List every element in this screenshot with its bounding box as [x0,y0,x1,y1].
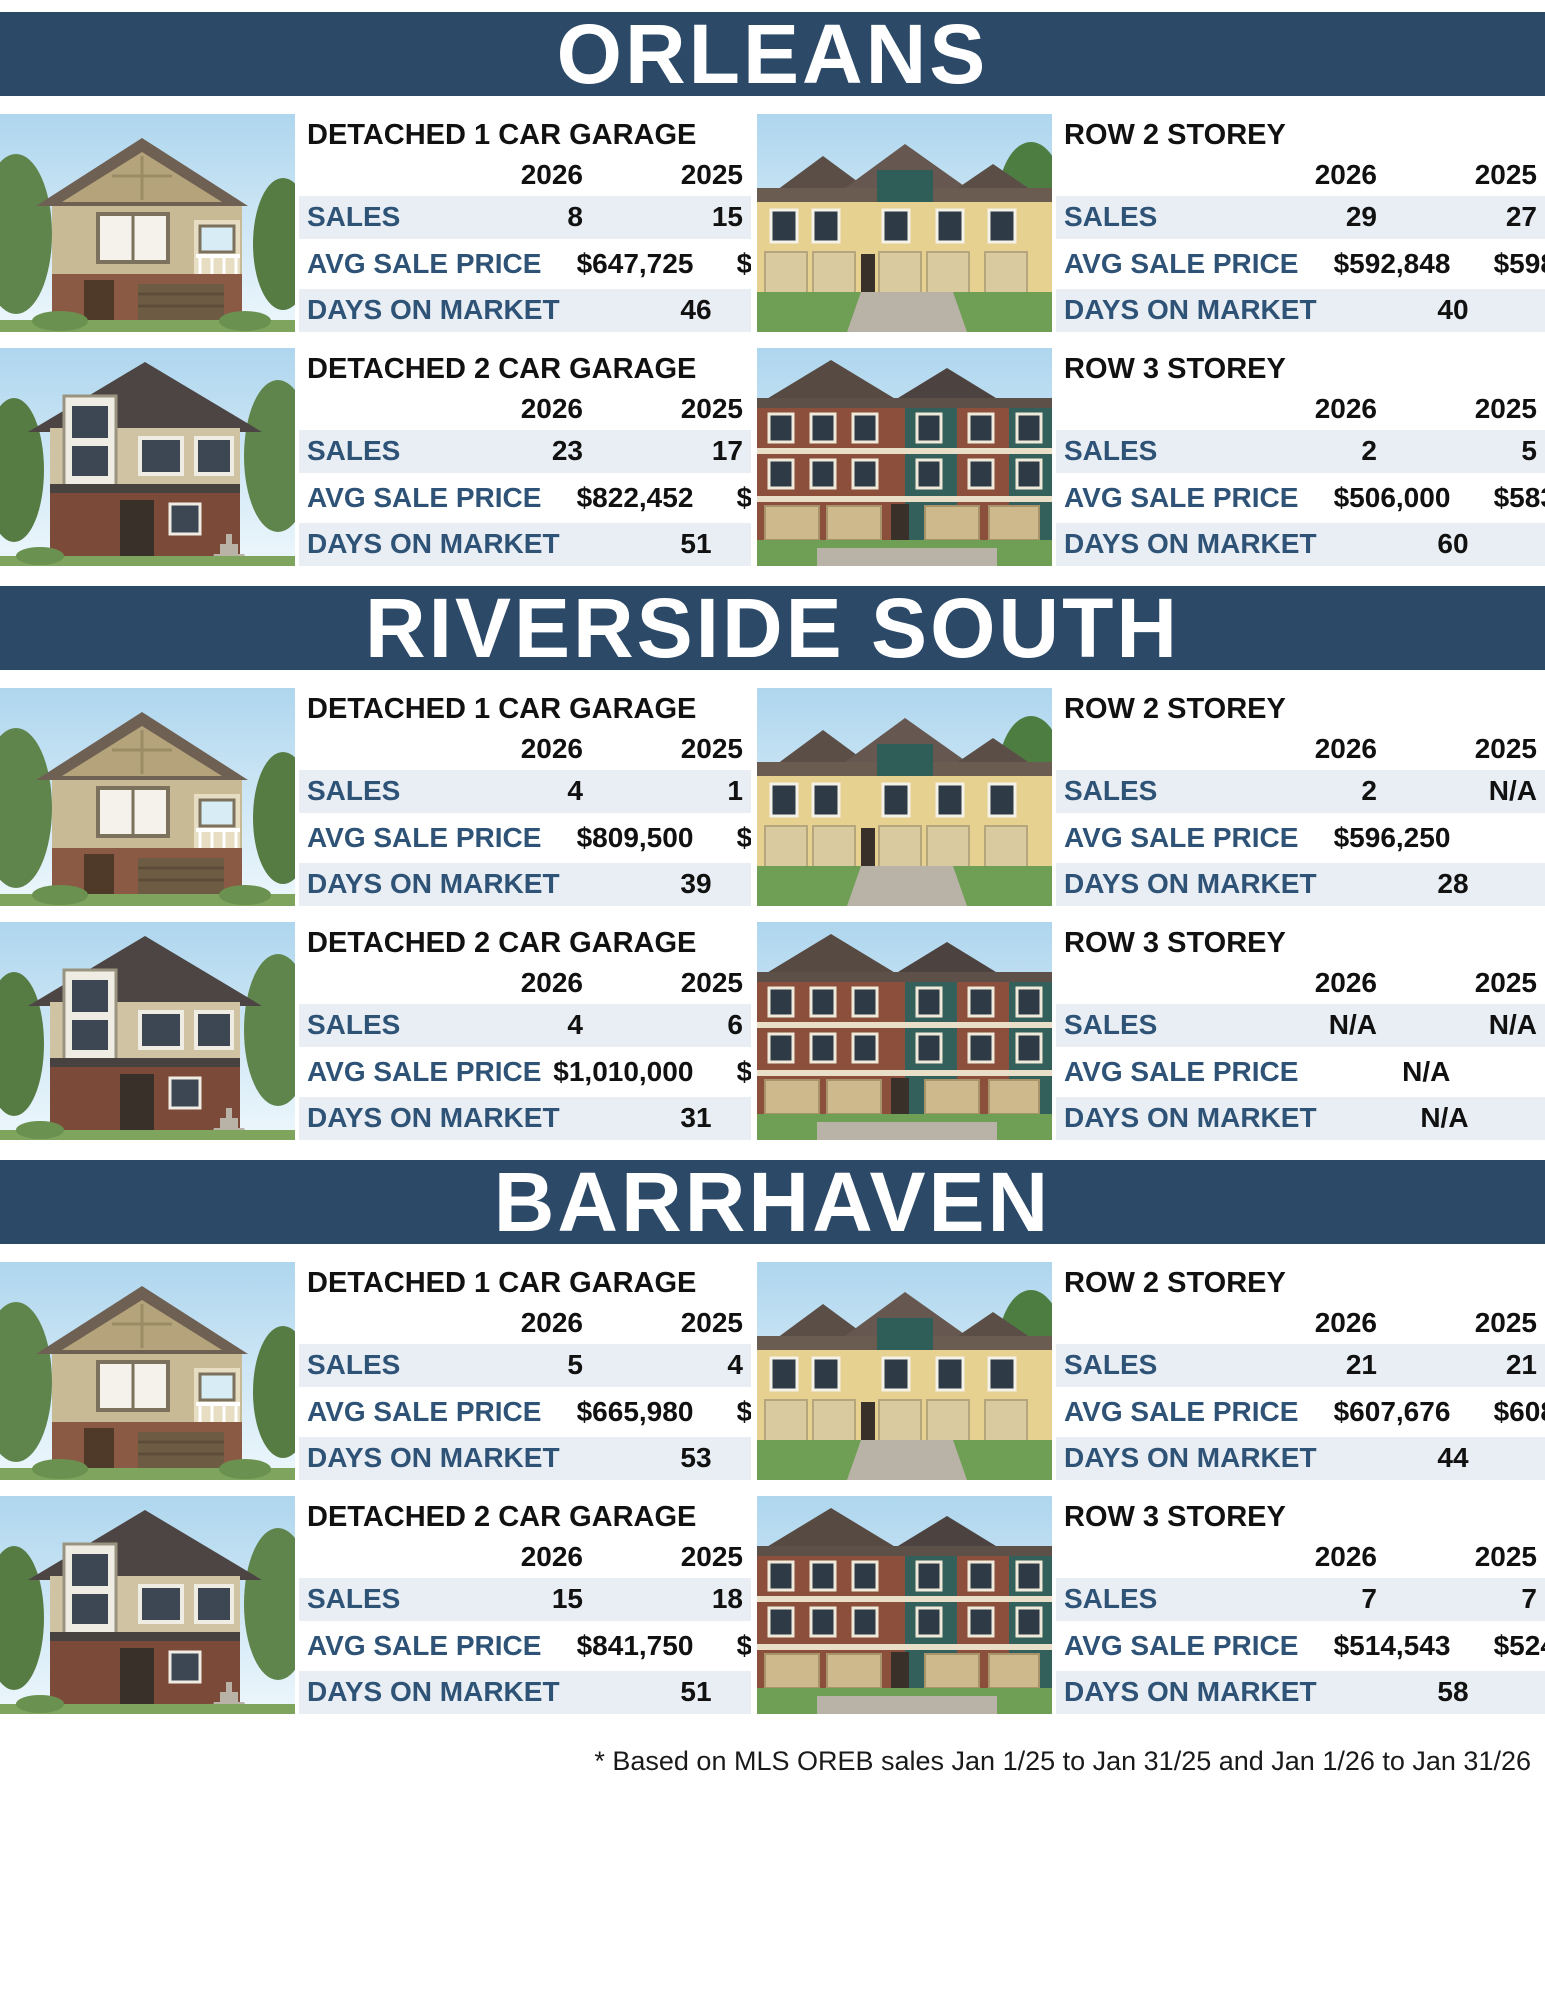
year-column-2026: 2026 [1225,1307,1385,1339]
stats-table: DETACHED 2 CAR GARAGE 2026 2025 SALES 4 … [299,922,751,1140]
year-column-2025: 2025 [591,393,751,425]
section-title: RIVERSIDE SOUTH [365,586,1180,670]
stats-table: DETACHED 1 CAR GARAGE 2026 2025 SALES 4 … [299,688,751,906]
table-title: DETACHED 2 CAR GARAGE [299,350,751,388]
house-image-row-3-storey [757,1496,1052,1714]
table-row-avg-sale-price: AVG SALE PRICE $506,000 $583,692 [1056,476,1545,519]
panel-barrhaven-detached-1-car: DETACHED 1 CAR GARAGE 2026 2025 SALES 5 … [0,1262,751,1480]
house-image-row-2-storey [757,1262,1052,1480]
section-grid: DETACHED 1 CAR GARAGE 2026 2025 SALES 5 … [0,1262,1545,1714]
table-title: ROW 3 STOREY [1056,1498,1545,1536]
house-image-row-3-storey [757,348,1052,566]
year-column-2026: 2026 [431,393,591,425]
table-year-header: 2026 2025 [1056,1539,1545,1575]
table-row-days-on-market: DAYS ON MARKET N/A N/A [1056,1097,1545,1140]
year-column-2025: 2025 [1385,1307,1545,1339]
table-title: ROW 3 STOREY [1056,924,1545,962]
house-image-row-2-storey [757,688,1052,906]
table-title: ROW 3 STOREY [1056,350,1545,388]
section-banner-barrhaven: BARRHAVEN [0,1160,1545,1244]
house-image-row-2-storey [757,114,1052,332]
table-row-sales: SALES 4 1 [299,770,751,813]
house-image-detached-2-car-garage [0,348,295,566]
table-title: DETACHED 2 CAR GARAGE [299,924,751,962]
stats-table: ROW 3 STOREY 2026 2025 SALES N/A N/A AVG… [1056,922,1545,1140]
table-year-header: 2026 2025 [299,1305,751,1341]
stats-table: ROW 3 STOREY 2026 2025 SALES 7 7 AVG SAL… [1056,1496,1545,1714]
table-row-sales: SALES 7 7 [1056,1578,1545,1621]
table-row-avg-sale-price: AVG SALE PRICE $822,452 $767,912 [299,476,751,519]
table-row-days-on-market: DAYS ON MARKET 58 24 [1056,1671,1545,1714]
table-row-days-on-market: DAYS ON MARKET 31 39 [299,1097,751,1140]
table-row-avg-sale-price: AVG SALE PRICE $596,250 N/A [1056,816,1545,859]
year-column-2026: 2026 [431,733,591,765]
year-column-2026: 2026 [1225,393,1385,425]
table-year-header: 2026 2025 [1056,965,1545,1001]
stats-table: ROW 2 STOREY 2026 2025 SALES 2 N/A AVG S… [1056,688,1545,906]
section-banner-orleans: ORLEANS [0,12,1545,96]
year-column-2025: 2025 [591,733,751,765]
footnote: * Based on MLS OREB sales Jan 1/25 to Ja… [0,1746,1545,1777]
year-column-2025: 2025 [591,1307,751,1339]
panel-riverside-detached-1-car: DETACHED 1 CAR GARAGE 2026 2025 SALES 4 … [0,688,751,906]
table-row-sales: SALES N/A N/A [1056,1004,1545,1047]
stats-table: DETACHED 1 CAR GARAGE 2026 2025 SALES 5 … [299,1262,751,1480]
section-barrhaven: BARRHAVEN DETACHED 1 CAR GARAGE 2026 202… [0,1160,1545,1714]
table-year-header: 2026 2025 [1056,1305,1545,1341]
table-year-header: 2026 2025 [299,1539,751,1575]
panel-orleans-row-3-storey: ROW 3 STOREY 2026 2025 SALES 2 5 AVG SAL… [757,348,1545,566]
table-year-header: 2026 2025 [299,391,751,427]
year-column-2025: 2025 [591,967,751,999]
year-column-2026: 2026 [431,1307,591,1339]
table-year-header: 2026 2025 [299,157,751,193]
table-row-sales: SALES 29 27 [1056,196,1545,239]
year-column-2025: 2025 [1385,393,1545,425]
section-riverside-south: RIVERSIDE SOUTH DETACHED 1 CAR GARAGE 20… [0,586,1545,1140]
stats-table: ROW 2 STOREY 2026 2025 SALES 29 27 AVG S… [1056,114,1545,332]
table-row-avg-sale-price: AVG SALE PRICE N/A N/A [1056,1050,1545,1093]
year-column-2026: 2026 [431,967,591,999]
year-column-2025: 2025 [1385,967,1545,999]
table-title: DETACHED 2 CAR GARAGE [299,1498,751,1536]
table-year-header: 2026 2025 [299,731,751,767]
stats-table: DETACHED 2 CAR GARAGE 2026 2025 SALES 23… [299,348,751,566]
table-row-days-on-market: DAYS ON MARKET 44 52 [1056,1437,1545,1480]
table-row-days-on-market: DAYS ON MARKET 60 76 [1056,523,1545,566]
table-row-days-on-market: DAYS ON MARKET 40 46 [1056,289,1545,332]
table-row-avg-sale-price: AVG SALE PRICE $665,980 $697,500 [299,1390,751,1433]
year-column-2026: 2026 [1225,159,1385,191]
section-banner-riverside-south: RIVERSIDE SOUTH [0,586,1545,670]
table-title: DETACHED 1 CAR GARAGE [299,116,751,154]
year-column-2026: 2026 [431,159,591,191]
house-image-row-3-storey [757,922,1052,1140]
year-column-2025: 2025 [1385,1541,1545,1573]
table-year-header: 2026 2025 [299,965,751,1001]
table-row-sales: SALES 21 21 [1056,1344,1545,1387]
year-column-2026: 2026 [1225,967,1385,999]
table-row-days-on-market: DAYS ON MARKET 46 38 [299,289,751,332]
section-title: BARRHAVEN [494,1160,1051,1244]
table-row-avg-sale-price: AVG SALE PRICE $592,848 $598,481 [1056,242,1545,285]
panel-riverside-row-3-storey: ROW 3 STOREY 2026 2025 SALES N/A N/A AVG… [757,922,1545,1140]
table-year-header: 2026 2025 [1056,157,1545,193]
table-row-avg-sale-price: AVG SALE PRICE $514,543 $524,400 [1056,1624,1545,1667]
table-year-header: 2026 2025 [1056,391,1545,427]
table-row-sales: SALES 4 6 [299,1004,751,1047]
house-image-detached-2-car-garage [0,922,295,1140]
stats-table: DETACHED 1 CAR GARAGE 2026 2025 SALES 8 … [299,114,751,332]
table-row-avg-sale-price: AVG SALE PRICE $1,010,000 $899,317 [299,1050,751,1093]
table-row-days-on-market: DAYS ON MARKET 39 50 [299,863,751,906]
table-row-sales: SALES 2 N/A [1056,770,1545,813]
year-column-2026: 2026 [431,1541,591,1573]
section-grid: DETACHED 1 CAR GARAGE 2026 2025 SALES 8 … [0,114,1545,566]
year-column-2025: 2025 [591,1541,751,1573]
year-column-2026: 2026 [1225,733,1385,765]
year-column-2025: 2025 [591,159,751,191]
stats-table: DETACHED 2 CAR GARAGE 2026 2025 SALES 15… [299,1496,751,1714]
table-row-avg-sale-price: AVG SALE PRICE $607,676 $608,438 [1056,1390,1545,1433]
market-report-page: ORLEANS DETACHED 1 CAR GARAGE 2026 2025 … [0,0,1545,2000]
table-row-avg-sale-price: AVG SALE PRICE $809,500 $600,000 [299,816,751,859]
house-image-detached-1-car-garage [0,688,295,906]
table-row-days-on-market: DAYS ON MARKET 51 47 [299,1671,751,1714]
section-grid: DETACHED 1 CAR GARAGE 2026 2025 SALES 4 … [0,688,1545,1140]
year-column-2025: 2025 [1385,733,1545,765]
panel-orleans-row-2-storey: ROW 2 STOREY 2026 2025 SALES 29 27 AVG S… [757,114,1545,332]
panel-riverside-row-2-storey: ROW 2 STOREY 2026 2025 SALES 2 N/A AVG S… [757,688,1545,906]
house-image-detached-2-car-garage [0,1496,295,1714]
year-column-2025: 2025 [1385,159,1545,191]
table-row-sales: SALES 5 4 [299,1344,751,1387]
section-title: ORLEANS [557,12,989,96]
panel-orleans-detached-1-car: DETACHED 1 CAR GARAGE 2026 2025 SALES 8 … [0,114,751,332]
panel-barrhaven-row-2-storey: ROW 2 STOREY 2026 2025 SALES 21 21 AVG S… [757,1262,1545,1480]
table-row-sales: SALES 23 17 [299,430,751,473]
stats-table: ROW 2 STOREY 2026 2025 SALES 21 21 AVG S… [1056,1262,1545,1480]
table-year-header: 2026 2025 [1056,731,1545,767]
table-title: DETACHED 1 CAR GARAGE [299,690,751,728]
house-image-detached-1-car-garage [0,114,295,332]
panel-barrhaven-detached-2-car: DETACHED 2 CAR GARAGE 2026 2025 SALES 15… [0,1496,751,1714]
table-title: ROW 2 STOREY [1056,116,1545,154]
table-row-sales: SALES 15 18 [299,1578,751,1621]
panel-orleans-detached-2-car: DETACHED 2 CAR GARAGE 2026 2025 SALES 23… [0,348,751,566]
table-title: ROW 2 STOREY [1056,690,1545,728]
section-orleans: ORLEANS DETACHED 1 CAR GARAGE 2026 2025 … [0,12,1545,566]
panel-barrhaven-row-3-storey: ROW 3 STOREY 2026 2025 SALES 7 7 AVG SAL… [757,1496,1545,1714]
table-title: ROW 2 STOREY [1056,1264,1545,1302]
table-row-days-on-market: DAYS ON MARKET 28 N/A [1056,863,1545,906]
table-row-sales: SALES 8 15 [299,196,751,239]
table-row-days-on-market: DAYS ON MARKET 53 50 [299,1437,751,1480]
table-row-avg-sale-price: AVG SALE PRICE $841,750 $932,203 [299,1624,751,1667]
panel-riverside-detached-2-car: DETACHED 2 CAR GARAGE 2026 2025 SALES 4 … [0,922,751,1140]
stats-table: ROW 3 STOREY 2026 2025 SALES 2 5 AVG SAL… [1056,348,1545,566]
table-row-avg-sale-price: AVG SALE PRICE $647,725 $647,273 [299,242,751,285]
year-column-2026: 2026 [1225,1541,1385,1573]
table-title: DETACHED 1 CAR GARAGE [299,1264,751,1302]
table-row-days-on-market: DAYS ON MARKET 51 52 [299,523,751,566]
table-row-sales: SALES 2 5 [1056,430,1545,473]
house-image-detached-1-car-garage [0,1262,295,1480]
